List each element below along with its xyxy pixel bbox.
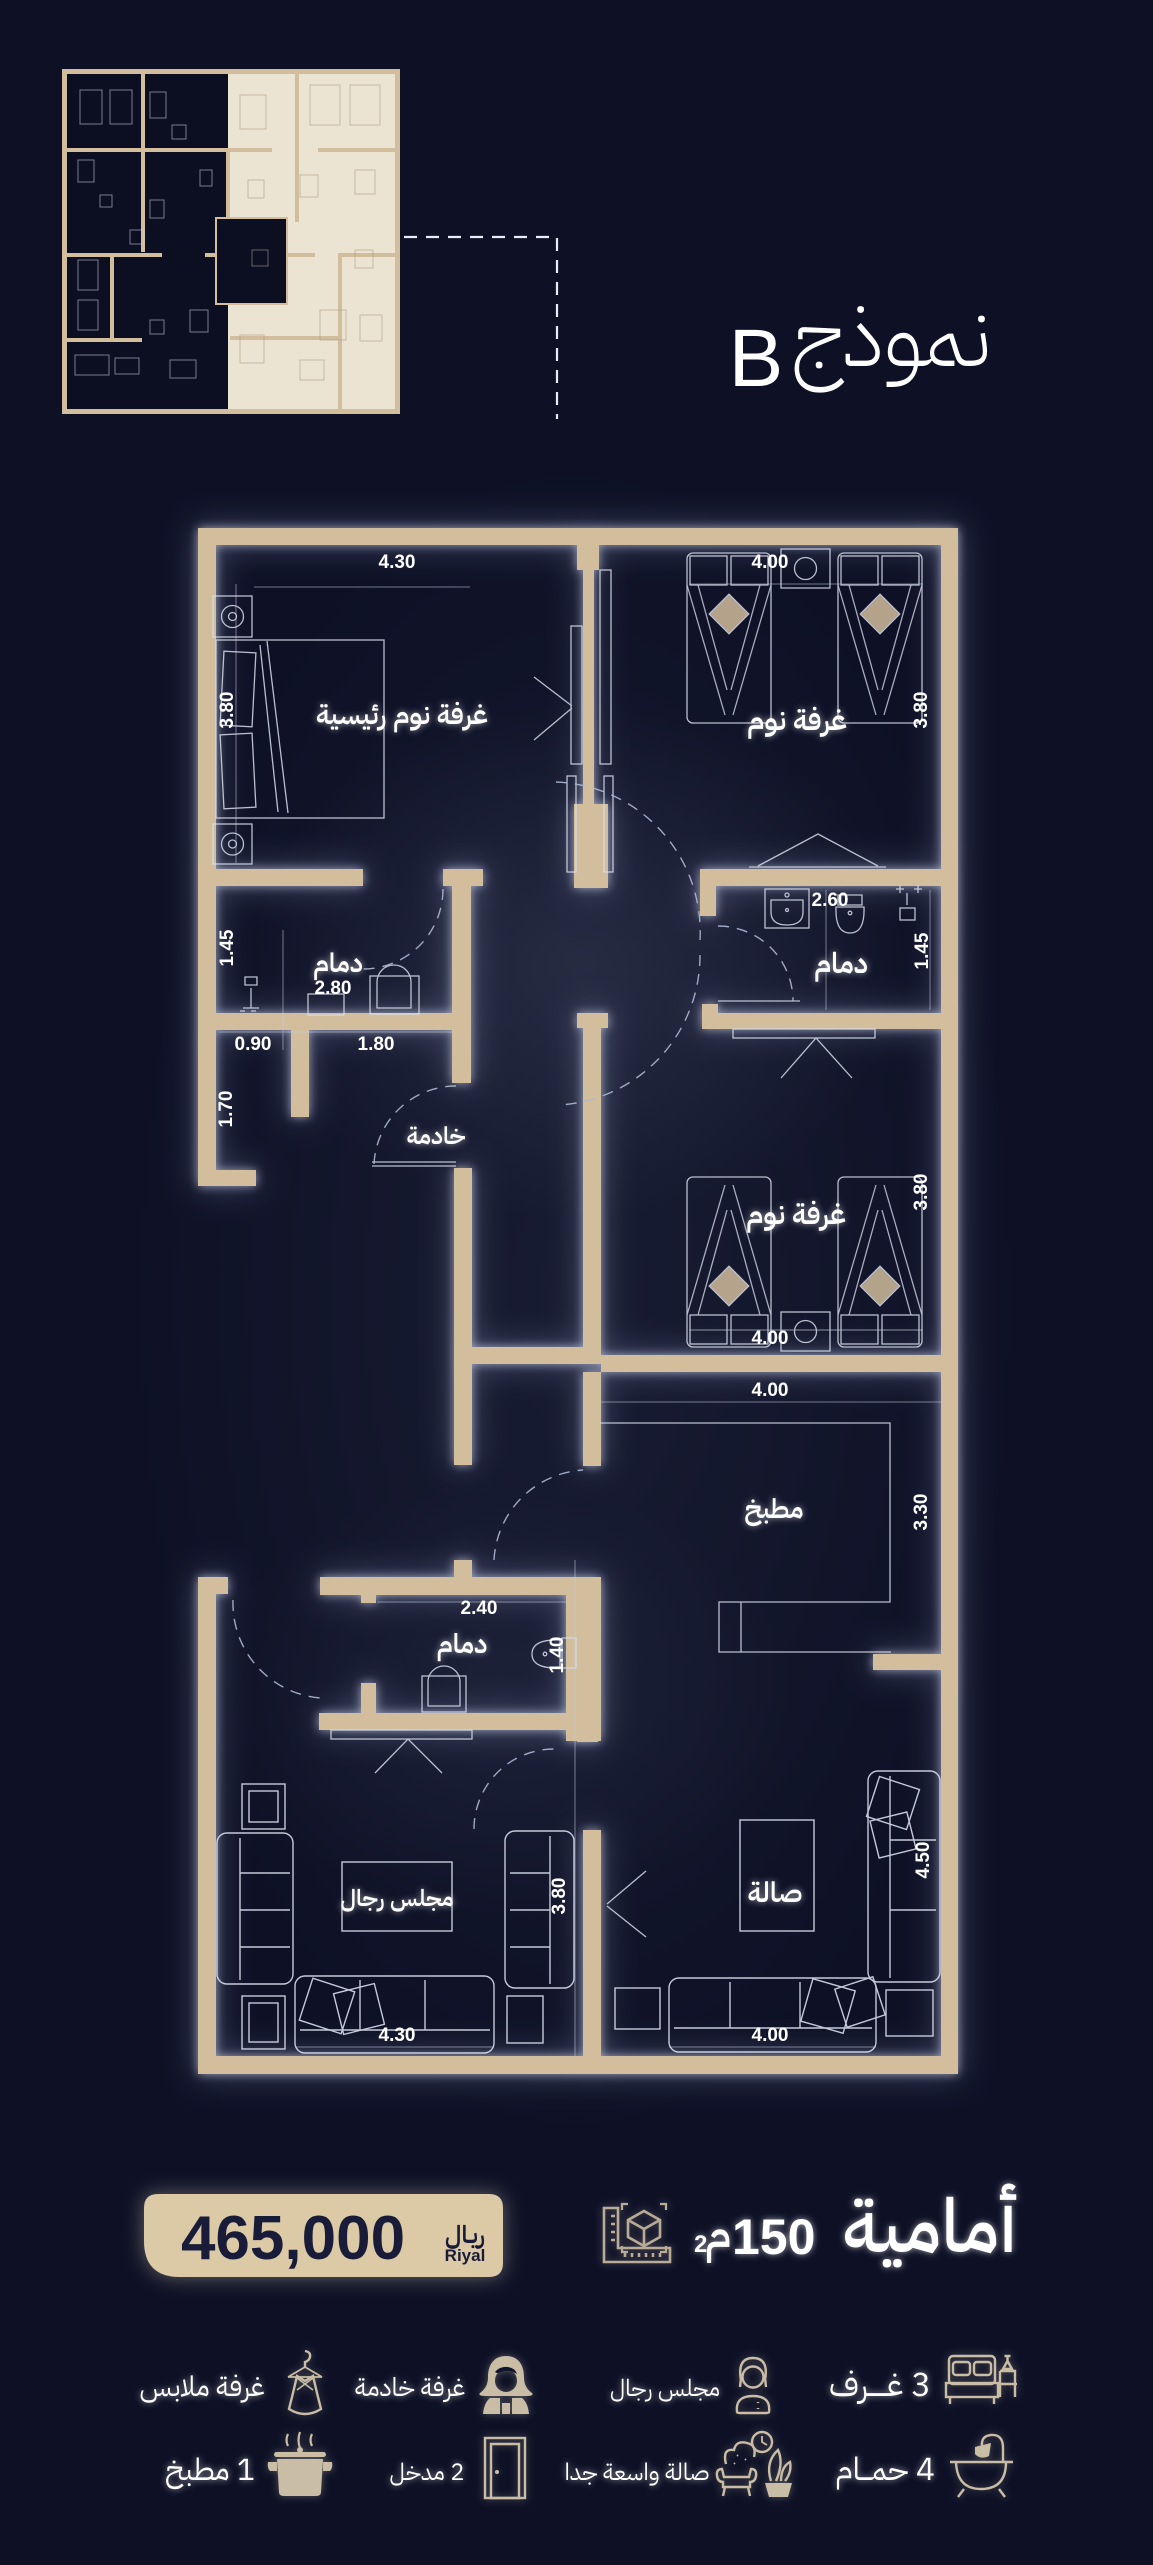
svg-text:1.40: 1.40 (547, 1637, 568, 1674)
svg-text:4.00: 4.00 (752, 552, 789, 573)
svg-text:1.70: 1.70 (216, 1091, 237, 1128)
svg-text:4.00: 4.00 (752, 2025, 789, 2046)
svg-text:3.30: 3.30 (911, 1494, 932, 1531)
svg-text:3.80: 3.80 (217, 692, 238, 729)
svg-text:2.60: 2.60 (812, 890, 849, 911)
svg-text:2.80: 2.80 (315, 978, 352, 999)
svg-text:1.45: 1.45 (912, 932, 933, 969)
svg-text:0.90: 0.90 (235, 1034, 272, 1055)
svg-text:4.00: 4.00 (752, 1380, 789, 1401)
svg-text:Riyal: Riyal (445, 2246, 486, 2265)
svg-text:150: 150 (732, 2209, 815, 2265)
svg-text:4.30: 4.30 (379, 2025, 416, 2046)
svg-text:1.80: 1.80 (358, 1034, 395, 1055)
svg-text:4.50: 4.50 (913, 1842, 934, 1879)
svg-text:2: 2 (694, 2231, 707, 2258)
svg-text:B: B (729, 313, 784, 404)
svg-text:3.80: 3.80 (911, 692, 932, 729)
svg-text:3.80: 3.80 (549, 1878, 570, 1915)
svg-text:4.00: 4.00 (752, 1328, 789, 1349)
svg-text:2.40: 2.40 (461, 1598, 498, 1619)
svg-text:3.80: 3.80 (911, 1174, 932, 1211)
svg-text:465,000: 465,000 (181, 2204, 405, 2273)
svg-text:4.30: 4.30 (379, 552, 416, 573)
svg-text:1.45: 1.45 (217, 929, 238, 966)
